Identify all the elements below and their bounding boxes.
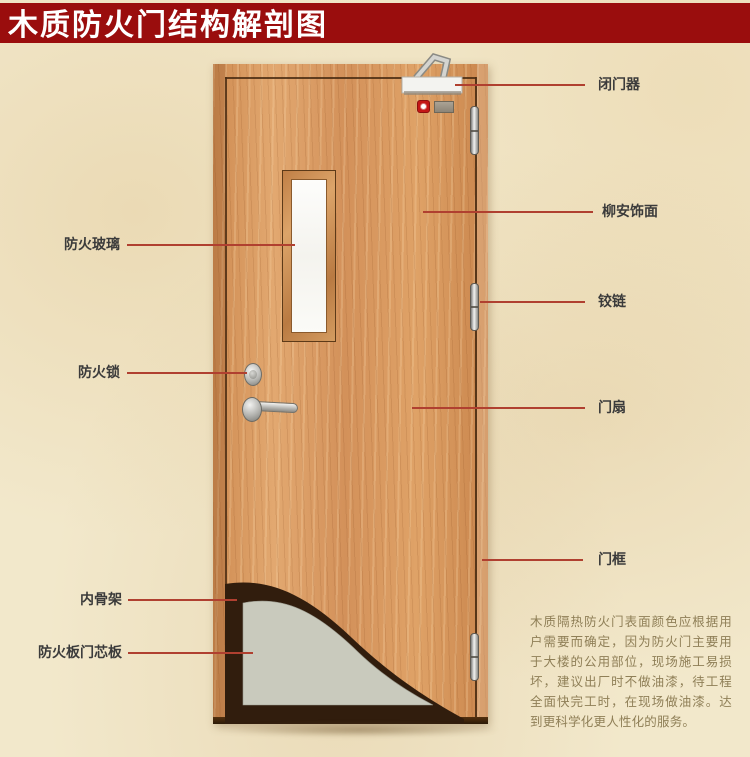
callout-line-fire-core-board xyxy=(128,652,253,654)
callout-line-door-closer xyxy=(455,84,585,86)
description-note: 木质隔热防火门表面颜色应根据用户需要而确定，因为防火门主要用于大楼的公用部位，现… xyxy=(530,612,732,752)
label-lauan-veneer: 柳安饰面 xyxy=(602,204,658,220)
door-name-plate xyxy=(434,101,454,113)
title-banner: 木质防火门结构解剖图 xyxy=(0,3,750,43)
callout-line-inner-skeleton xyxy=(128,599,237,601)
lock-rosette xyxy=(242,397,262,422)
door-floor-shadow xyxy=(216,723,502,737)
door-closer-device xyxy=(398,50,468,98)
fire-alarm-badge-icon xyxy=(417,100,430,113)
label-fire-glass: 防火玻璃 xyxy=(20,237,120,253)
door-closer-body xyxy=(402,77,462,93)
callout-line-door-leaf xyxy=(412,407,585,409)
callout-line-lauan-veneer xyxy=(423,211,593,213)
label-inner-skeleton: 内骨架 xyxy=(22,592,122,608)
hinge-middle xyxy=(470,283,479,331)
label-fire-core-board: 防火板门芯板 xyxy=(22,645,122,661)
door-cutaway xyxy=(213,574,488,726)
fire-core-board-surface xyxy=(243,601,433,705)
label-door-closer: 闭门器 xyxy=(598,77,640,93)
page-title: 木质防火门结构解剖图 xyxy=(8,9,328,43)
callout-line-hinge xyxy=(480,301,585,303)
lock-keyhole xyxy=(249,370,257,379)
label-hinge: 铰链 xyxy=(598,294,626,310)
fire-lock-cylinder xyxy=(244,363,262,386)
fire-glass-window xyxy=(282,170,336,342)
label-door-leaf: 门扇 xyxy=(598,400,626,416)
hinge-top xyxy=(470,106,479,155)
door-leaf-gap-left xyxy=(225,77,227,589)
callout-line-fire-lock xyxy=(127,372,247,374)
callout-line-fire-glass xyxy=(127,244,295,246)
callout-line-door-frame xyxy=(482,559,583,561)
door-closer-shadow xyxy=(404,91,461,95)
label-fire-lock: 防火锁 xyxy=(20,365,120,381)
label-door-frame: 门框 xyxy=(598,552,626,568)
fire-glass-pane xyxy=(291,179,327,333)
hinge-bottom xyxy=(470,633,479,681)
badge-dot xyxy=(421,104,426,109)
